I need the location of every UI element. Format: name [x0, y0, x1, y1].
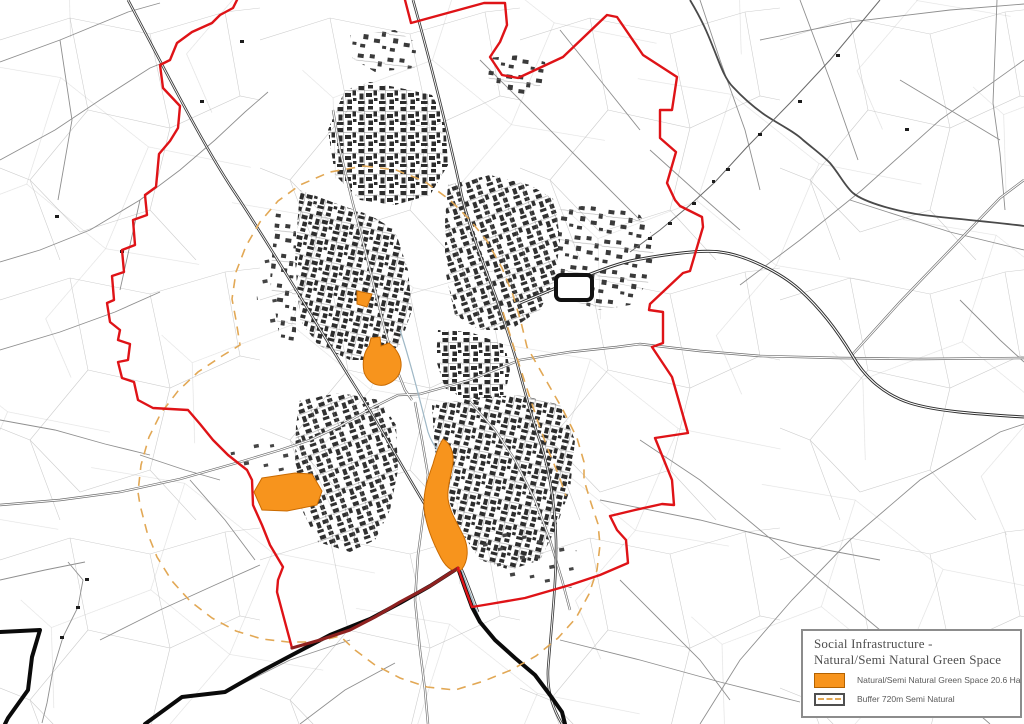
map-page: Social Infrastructure - Natural/Semi Nat… [0, 0, 1024, 724]
legend: Social Infrastructure - Natural/Semi Nat… [801, 629, 1022, 718]
legend-item-green-space: Natural/Semi Natural Green Space 20.6 Ha [814, 673, 1014, 688]
legend-title-line1: Social Infrastructure - [814, 636, 1014, 652]
buffer-dash-icon [818, 698, 841, 700]
green-space-swatch [814, 673, 845, 688]
legend-title-line2: Natural/Semi Natural Green Space [814, 652, 1014, 668]
stadium-building [556, 275, 592, 300]
map-canvas [0, 0, 1024, 724]
buffer-label: Buffer 720m Semi Natural [857, 694, 955, 704]
legend-item-buffer: Buffer 720m Semi Natural [814, 693, 1014, 706]
green-space-label: Natural/Semi Natural Green Space 20.6 Ha [857, 675, 1020, 685]
buffer-swatch [814, 693, 845, 706]
legend-title: Social Infrastructure - Natural/Semi Nat… [814, 636, 1014, 668]
green-space-polygon-3 [254, 473, 322, 511]
